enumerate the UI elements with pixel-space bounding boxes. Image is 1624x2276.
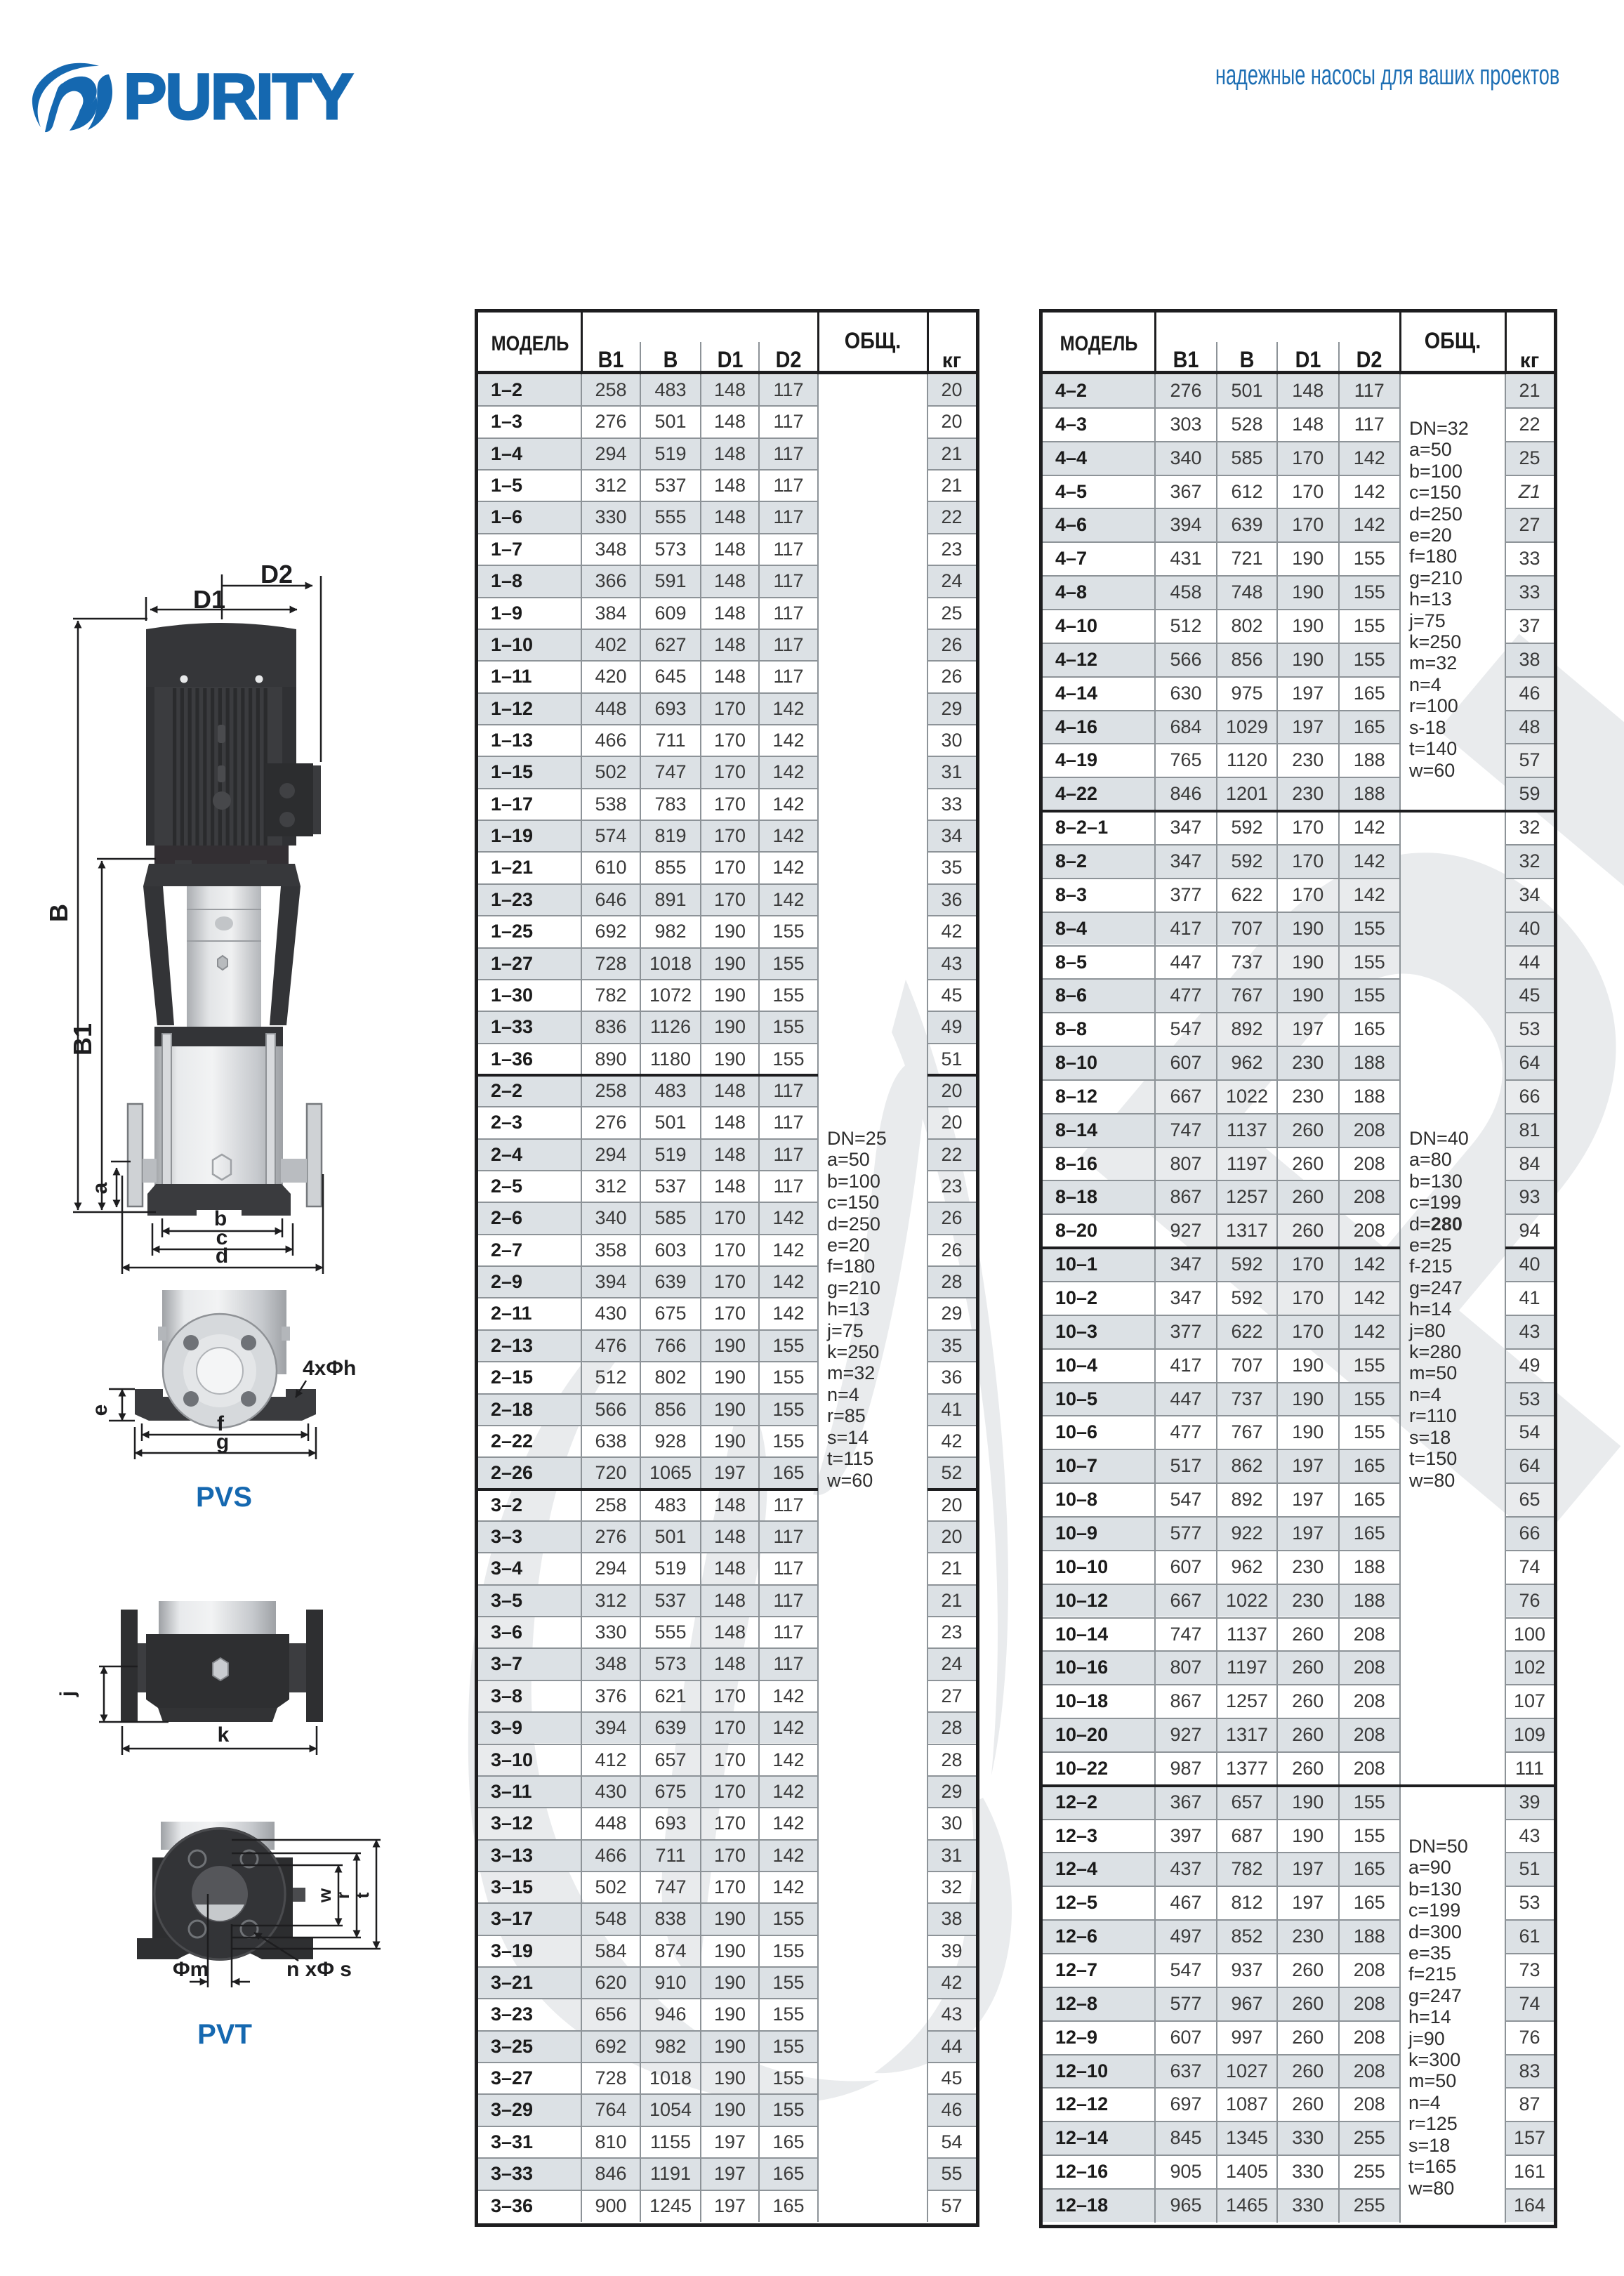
svg-text:e: e [88, 1405, 112, 1416]
svg-text:D2: D2 [260, 560, 293, 588]
svg-text:4xΦh: 4xΦh [303, 1357, 356, 1380]
svg-text:n xΦ s: n xΦ s [286, 1958, 352, 1981]
svg-text:B: B [44, 904, 73, 922]
svg-text:PVS: PVS [196, 1482, 252, 1513]
svg-text:B1: B1 [68, 1023, 97, 1055]
svg-text:k: k [218, 1723, 230, 1747]
svg-text:Φm: Φm [173, 1958, 209, 1981]
svg-text:j: j [56, 1691, 79, 1697]
svg-text:r: r [332, 1892, 353, 1899]
svg-text:d: d [216, 1244, 228, 1268]
svg-text:PVT: PVT [197, 2019, 252, 2050]
svg-text:g: g [216, 1430, 229, 1454]
svg-text:a: a [88, 1182, 112, 1194]
svg-text:t: t [352, 1892, 373, 1898]
